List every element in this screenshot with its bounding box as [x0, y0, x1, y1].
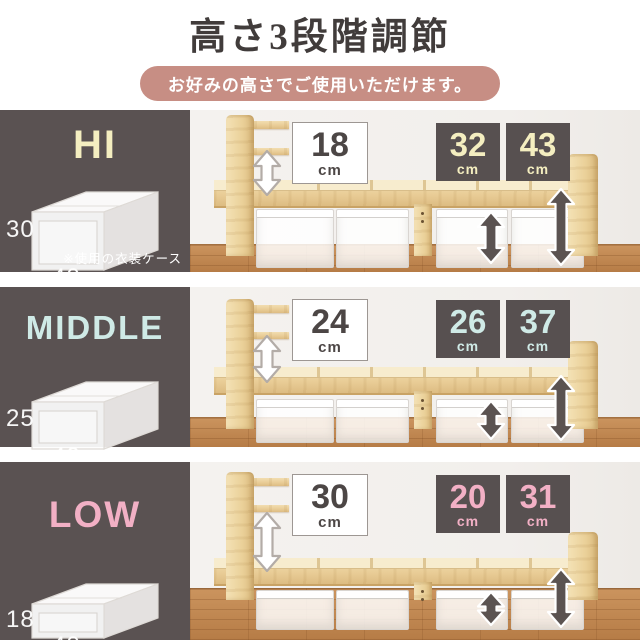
dark-double-arrow-icon — [476, 591, 506, 626]
section-hi: HI 30 40 ※使用の衣装ケース 18 cm — [0, 110, 640, 272]
underbed-case — [256, 590, 334, 630]
bed-center-leg — [414, 391, 432, 429]
header: 高さ3段階調節 お好みの高さでご使用いただけます。 — [0, 0, 640, 110]
headboard-post — [226, 472, 254, 600]
underbed1-unit: cm — [457, 514, 479, 528]
case-height-value: 25 — [6, 405, 35, 433]
gap-unit: cm — [318, 340, 342, 355]
headboard-gap-callout: 24 cm — [292, 299, 368, 361]
gap-unit: cm — [318, 515, 342, 530]
headboard-post — [226, 115, 254, 256]
case-height-value: 30 — [6, 216, 35, 244]
underbed-height-callout-2: 43 cm — [506, 123, 570, 181]
bed-center-leg — [414, 582, 432, 600]
underbed1-unit: cm — [457, 162, 479, 176]
low-storage-case: 18 40 — [20, 538, 170, 640]
underbed-height-callout-1: 32 cm — [436, 123, 500, 181]
underbed-case — [336, 209, 409, 268]
storage-case-illustration — [20, 538, 170, 640]
gap-unit: cm — [318, 163, 342, 178]
headboard-post — [226, 299, 254, 429]
hi-panel: HI 30 40 ※使用の衣装ケース — [0, 110, 190, 272]
section-low: LOW 18 40 30 cm — [0, 462, 640, 640]
headboard-shelf — [254, 478, 289, 486]
low-label: LOW — [0, 494, 190, 536]
gap-value: 18 — [311, 128, 349, 162]
underbed-case — [336, 399, 409, 443]
storage-case-illustration — [20, 349, 170, 455]
underbed-height-callout-2: 37 cm — [506, 300, 570, 358]
underbed1-value: 20 — [450, 480, 487, 513]
underbed2-value: 37 — [520, 305, 557, 338]
headboard-shelf — [254, 305, 289, 313]
headboard-gap-callout: 18 cm — [292, 122, 368, 184]
underbed-case — [336, 590, 409, 630]
white-double-arrow-icon — [252, 512, 282, 572]
gap-value: 24 — [311, 305, 349, 339]
hi-label: HI — [0, 123, 190, 168]
headboard-shelf — [254, 505, 289, 512]
low-panel: LOW 18 40 — [0, 462, 190, 640]
underbed-height-callout-2: 31 cm — [506, 475, 570, 533]
underbed2-value: 31 — [520, 480, 557, 513]
case-usage-note: ※使用の衣装ケース — [63, 248, 182, 267]
white-double-arrow-icon — [252, 335, 282, 383]
case-width-value: 40 — [52, 632, 81, 640]
underbed1-unit: cm — [457, 339, 479, 353]
gap-value: 30 — [311, 480, 349, 514]
dark-double-arrow-icon — [476, 211, 506, 264]
page-title: 高さ3段階調節 — [0, 0, 640, 59]
underbed-case — [256, 399, 334, 443]
bed-center-leg — [414, 204, 432, 256]
dark-double-arrow-icon — [476, 400, 506, 440]
underbed2-unit: cm — [527, 514, 549, 528]
underbed2-unit: cm — [527, 339, 549, 353]
underbed-case — [256, 209, 334, 268]
low-bed-photo: 30 cm 20 cm 31 cm — [190, 462, 640, 640]
middle-label: MIDDLE — [0, 309, 190, 347]
middle-storage-case: 25 40 — [20, 349, 170, 460]
product-height-diagram: 高さ3段階調節 お好みの高さでご使用いただけます。 HI 30 40 ※使用の衣… — [0, 0, 640, 640]
underbed1-value: 32 — [450, 128, 487, 161]
underbed-height-callout-1: 20 cm — [436, 475, 500, 533]
underbed1-value: 26 — [450, 305, 487, 338]
white-double-arrow-icon — [252, 150, 282, 196]
subtitle-banner: お好みの高さでご使用いただけます。 — [140, 66, 500, 101]
case-height-value: 18 — [6, 606, 35, 634]
dark-double-arrow-icon — [546, 568, 576, 628]
middle-bed-photo: 24 cm 26 cm 37 cm — [190, 287, 640, 447]
section-middle: MIDDLE 25 40 24 cm — [0, 287, 640, 447]
underbed2-value: 43 — [520, 128, 557, 161]
headboard-shelf — [254, 121, 289, 129]
headboard-gap-callout: 30 cm — [292, 474, 368, 536]
underbed2-unit: cm — [527, 162, 549, 176]
hi-bed-photo: 18 cm 32 cm 43 cm — [190, 110, 640, 272]
dark-double-arrow-icon — [546, 188, 576, 266]
middle-panel: MIDDLE 25 40 — [0, 287, 190, 447]
underbed-height-callout-1: 26 cm — [436, 300, 500, 358]
dark-double-arrow-icon — [546, 375, 576, 441]
